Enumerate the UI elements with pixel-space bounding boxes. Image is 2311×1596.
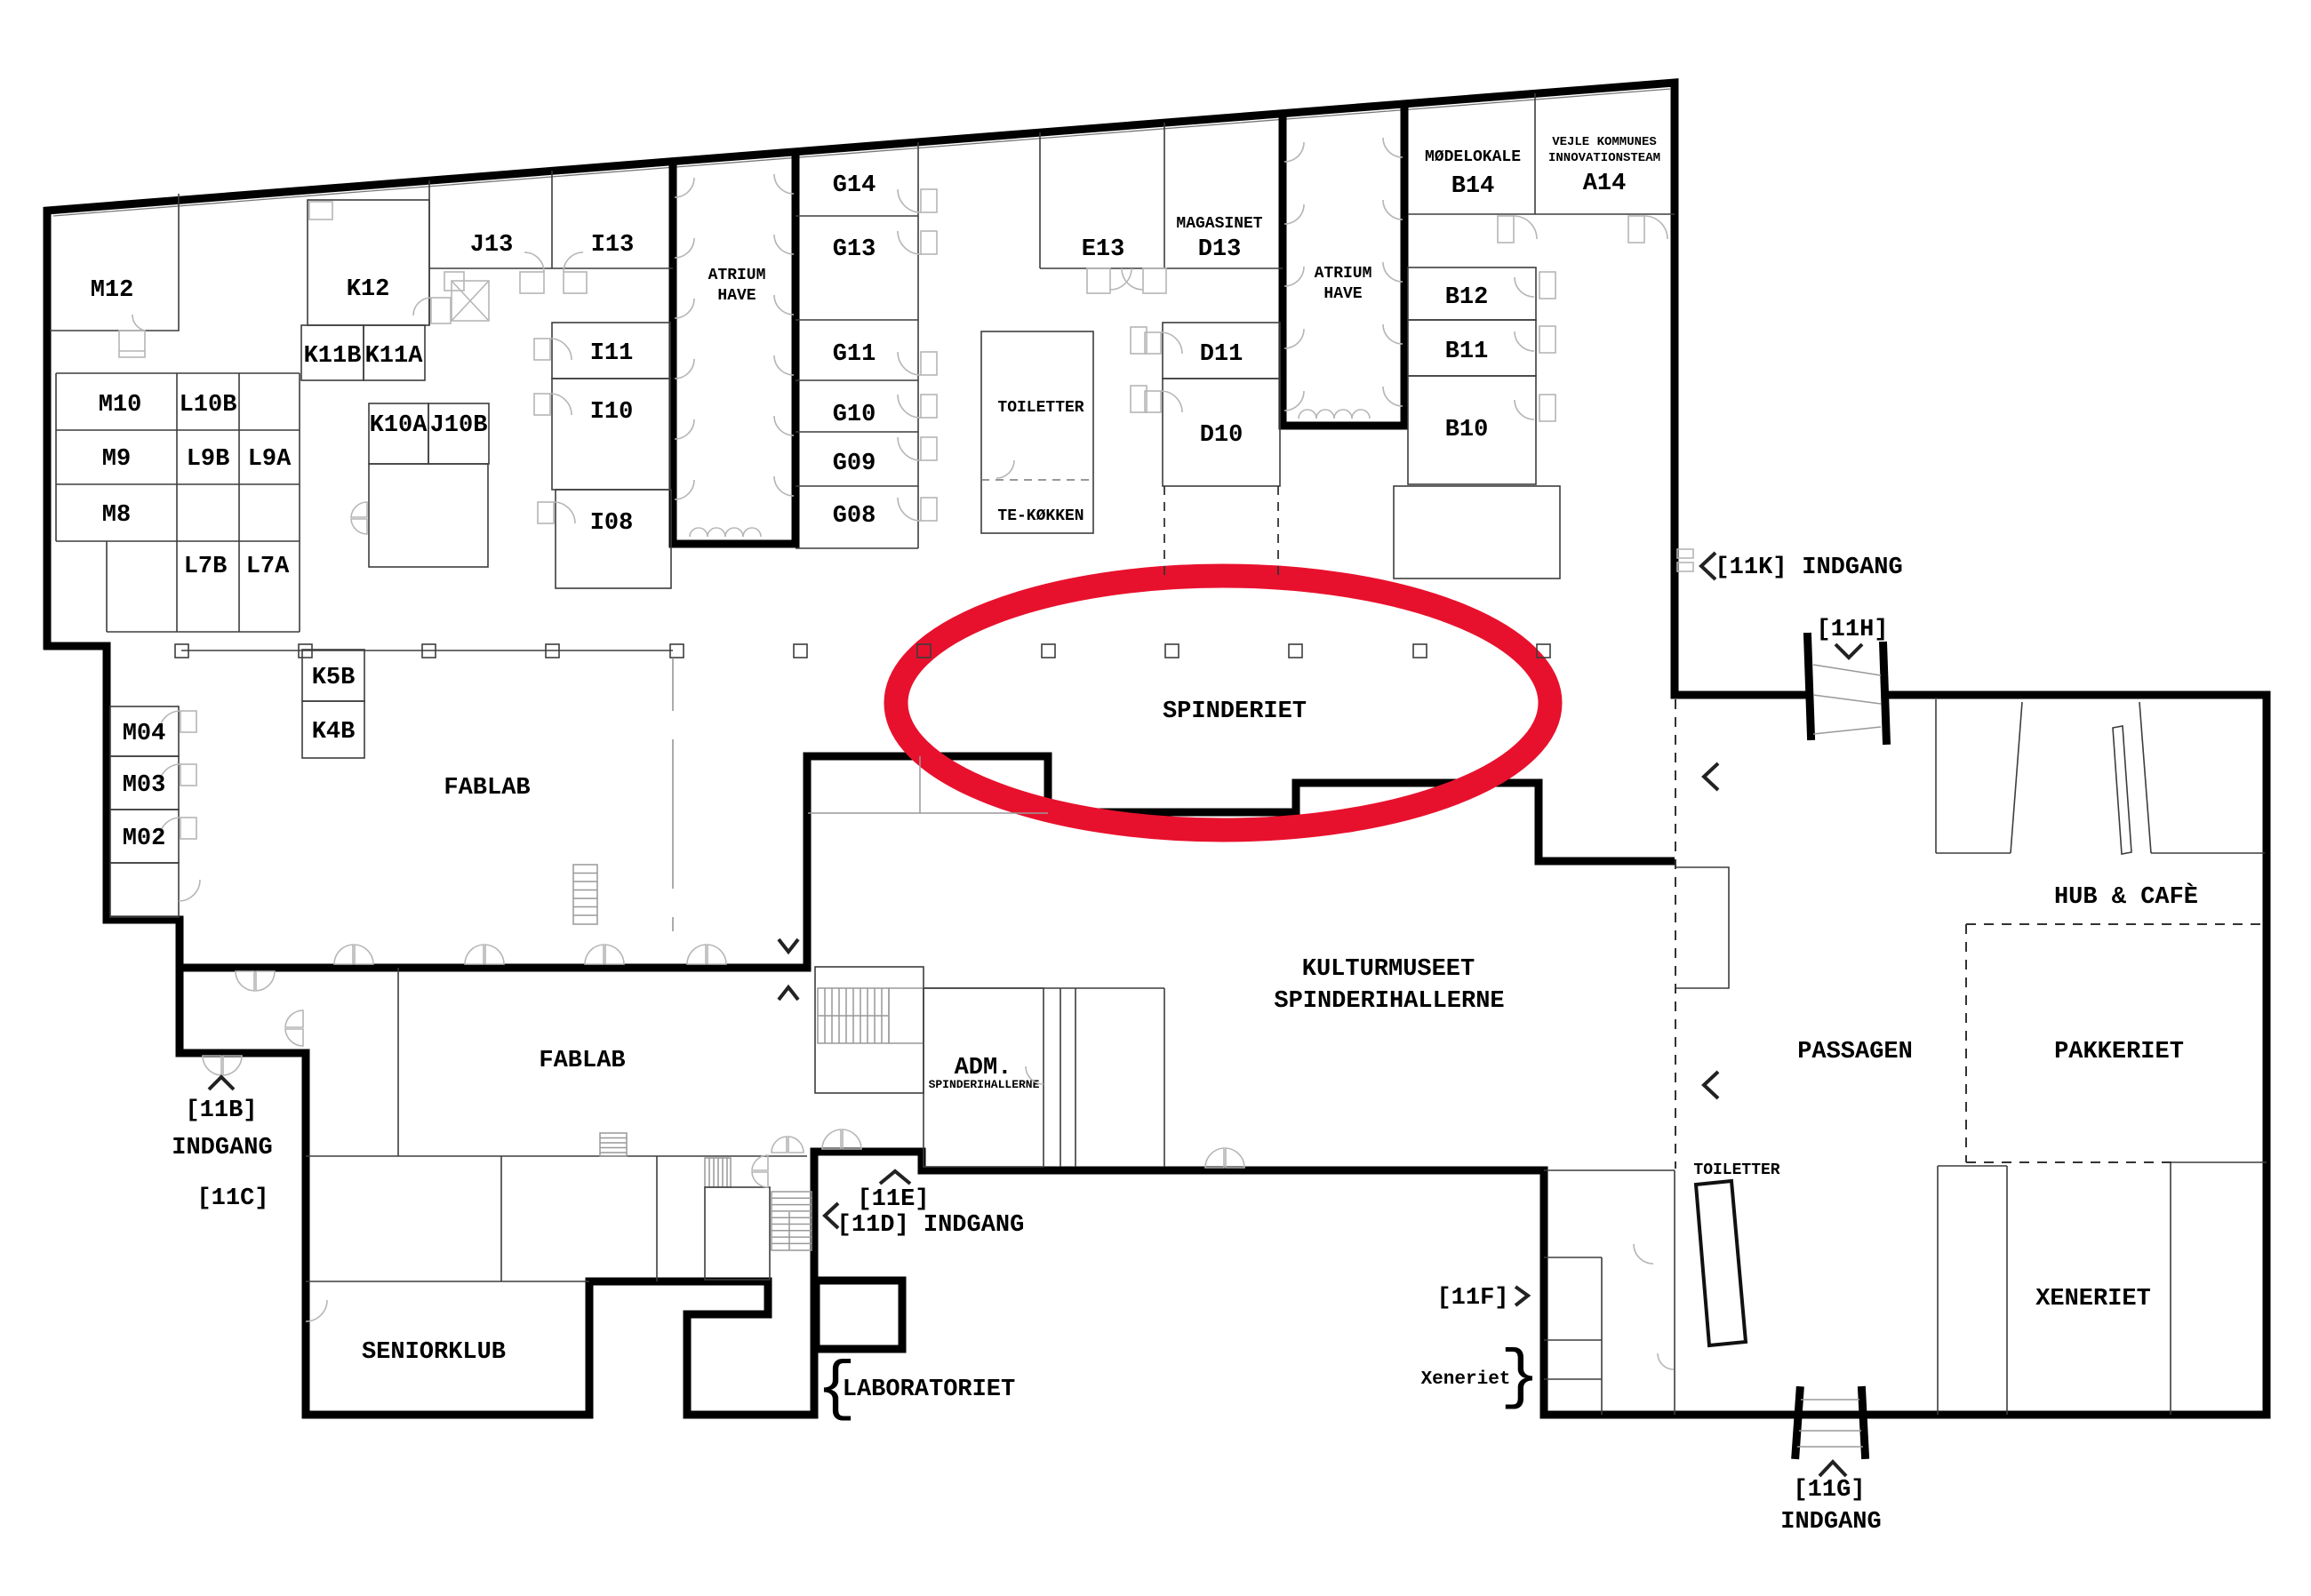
svg-text:L7B: L7B: [184, 554, 228, 580]
svg-text:K12: K12: [347, 276, 390, 303]
svg-text:L10B: L10B: [180, 392, 237, 419]
svg-text:M02: M02: [123, 826, 166, 852]
svg-text:[11G]: [11G]: [1793, 1477, 1865, 1504]
svg-text:I08: I08: [590, 510, 634, 537]
svg-text:[11E]: [11E]: [857, 1186, 929, 1213]
svg-text:I13: I13: [591, 232, 635, 259]
svg-text:SENIORKLUB: SENIORKLUB: [362, 1339, 506, 1366]
svg-text:K4B: K4B: [312, 719, 356, 746]
svg-text:M03: M03: [123, 772, 166, 799]
svg-text:SPINDERIHALLERNE: SPINDERIHALLERNE: [1274, 988, 1504, 1015]
svg-text:PASSAGEN: PASSAGEN: [1797, 1039, 1913, 1065]
svg-text:M9: M9: [102, 446, 131, 473]
svg-text:ATRIUM: ATRIUM: [1315, 265, 1372, 283]
svg-text:L9B: L9B: [187, 446, 230, 473]
svg-text:B10: B10: [1445, 417, 1489, 443]
svg-text:I10: I10: [590, 399, 634, 426]
svg-text:D10: D10: [1200, 422, 1243, 449]
svg-text:INDGANG: INDGANG: [172, 1135, 272, 1161]
svg-text:G09: G09: [833, 451, 876, 477]
svg-text:B11: B11: [1445, 339, 1489, 365]
svg-text:[11D] INDGANG: [11D] INDGANG: [837, 1212, 1025, 1239]
svg-text:SPINDERIET: SPINDERIET: [1163, 698, 1307, 725]
svg-text:}: }: [1500, 1341, 1539, 1416]
svg-text:HAVE: HAVE: [717, 287, 756, 305]
svg-text:HAVE: HAVE: [1323, 285, 1362, 303]
svg-text:G14: G14: [833, 172, 876, 199]
svg-text:HUB & CAFÈ: HUB & CAFÈ: [2054, 882, 2198, 911]
svg-text:J13: J13: [470, 232, 514, 259]
svg-text:KULTURMUSEET: KULTURMUSEET: [1302, 956, 1475, 983]
svg-text:G11: G11: [833, 341, 876, 368]
svg-text:M04: M04: [123, 721, 166, 747]
svg-text:D13: D13: [1198, 236, 1242, 263]
svg-text:G10: G10: [833, 402, 876, 428]
svg-text:G08: G08: [833, 503, 876, 530]
svg-text:L7A: L7A: [246, 554, 290, 580]
svg-text:[11C]: [11C]: [196, 1185, 268, 1212]
svg-text:[11B]: [11B]: [185, 1097, 257, 1124]
svg-text:[11H]: [11H]: [1816, 617, 1888, 643]
svg-text:M10: M10: [99, 392, 142, 419]
svg-text:D11: D11: [1200, 341, 1243, 368]
svg-text:FABLAB: FABLAB: [539, 1048, 625, 1074]
svg-text:K10A: K10A: [370, 412, 428, 439]
svg-text:INDGANG: INDGANG: [1780, 1509, 1881, 1536]
svg-text:XENERIET: XENERIET: [2035, 1286, 2151, 1313]
svg-text:J10B: J10B: [430, 412, 488, 439]
svg-text:VEJLE KOMMUNES: VEJLE KOMMUNES: [1552, 135, 1657, 149]
svg-text:G13: G13: [833, 236, 876, 263]
svg-text:A14: A14: [1583, 171, 1627, 197]
svg-text:B12: B12: [1445, 284, 1489, 311]
svg-text:MAGASINET: MAGASINET: [1176, 215, 1262, 233]
svg-text:INNOVATIONSTEAM: INNOVATIONSTEAM: [1548, 151, 1660, 165]
svg-text:L9A: L9A: [248, 446, 292, 473]
svg-text:Xeneriet: Xeneriet: [1421, 1369, 1511, 1390]
svg-text:SPINDERIHALLERNE: SPINDERIHALLERNE: [929, 1078, 1040, 1091]
svg-text:B14: B14: [1451, 173, 1495, 200]
svg-text:PAKKERIET: PAKKERIET: [2054, 1039, 2184, 1065]
svg-text:K11B: K11B: [304, 343, 362, 370]
svg-text:MØDELOKALE: MØDELOKALE: [1425, 148, 1521, 166]
svg-text:FABLAB: FABLAB: [444, 775, 530, 802]
svg-text:TE-KØKKEN: TE-KØKKEN: [997, 507, 1084, 525]
svg-text:M8: M8: [102, 502, 131, 529]
svg-text:E13: E13: [1082, 236, 1125, 263]
svg-text:[11K]: [11K]: [1715, 555, 1787, 581]
svg-text:INDGANG: INDGANG: [1802, 555, 1902, 581]
svg-text:ATRIUM: ATRIUM: [708, 267, 766, 284]
svg-text:TOILETTER: TOILETTER: [1693, 1161, 1779, 1179]
svg-text:TOILETTER: TOILETTER: [997, 399, 1084, 417]
svg-text:I11: I11: [590, 340, 634, 367]
svg-text:K5B: K5B: [312, 665, 356, 691]
svg-text:K11A: K11A: [365, 343, 424, 370]
svg-text:M12: M12: [91, 277, 134, 304]
svg-text:[11F]: [11F]: [1436, 1285, 1508, 1312]
svg-text:LABORATORIET: LABORATORIET: [843, 1377, 1015, 1403]
